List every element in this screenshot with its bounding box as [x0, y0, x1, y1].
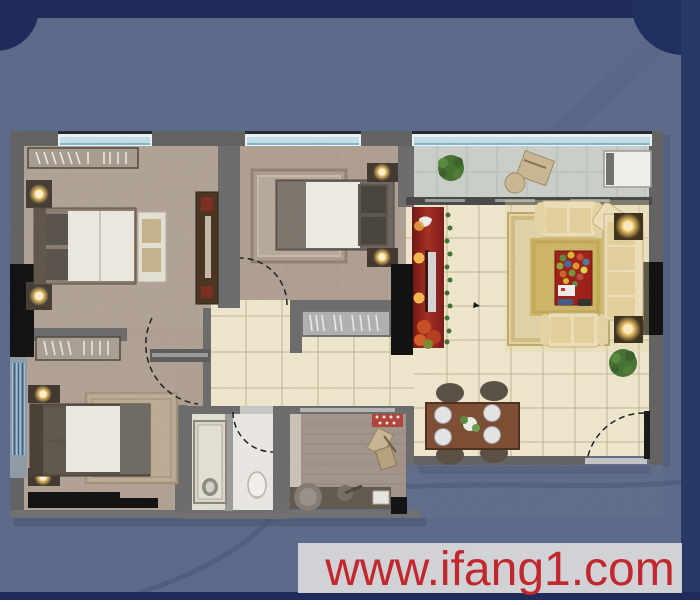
svg-text:www.ifang1.com: www.ifang1.com [324, 543, 674, 596]
